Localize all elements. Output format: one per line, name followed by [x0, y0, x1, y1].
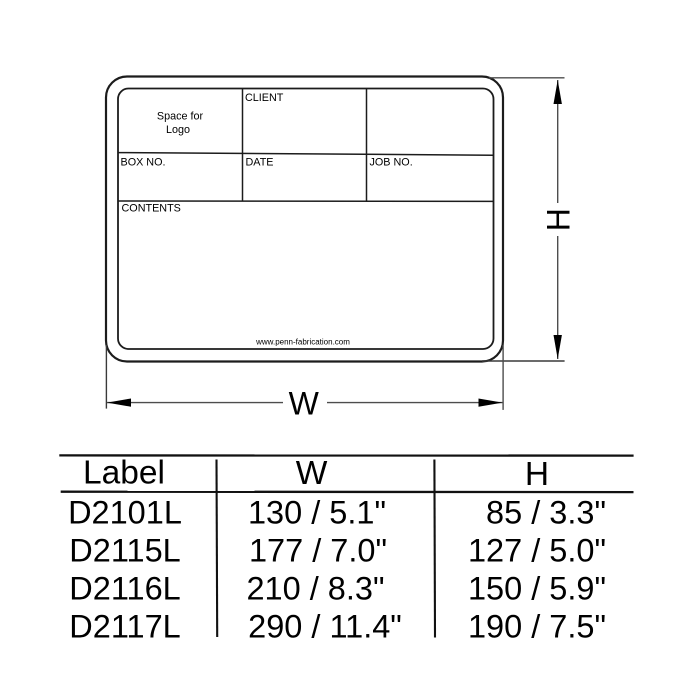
- svg-text:W: W: [296, 455, 328, 492]
- svg-text:150 / 5.9": 150 / 5.9": [468, 571, 606, 607]
- svg-text:DATE: DATE: [246, 156, 274, 168]
- svg-text:D2115L: D2115L: [69, 533, 180, 569]
- svg-text:210 / 8.3": 210 / 8.3": [246, 571, 384, 607]
- svg-text:www.penn-fabrication.com: www.penn-fabrication.com: [255, 338, 350, 347]
- svg-text:H: H: [525, 456, 549, 493]
- svg-text:D2116L: D2116L: [69, 571, 180, 607]
- svg-text:D2101L: D2101L: [68, 495, 182, 531]
- svg-text:290 / 11.4": 290 / 11.4": [248, 609, 402, 645]
- svg-text:JOB NO.: JOB NO.: [370, 156, 413, 168]
- svg-text:Label: Label: [83, 455, 165, 492]
- svg-text:W: W: [289, 386, 320, 422]
- svg-text:Logo: Logo: [166, 124, 190, 136]
- svg-text:CLIENT: CLIENT: [245, 92, 284, 104]
- svg-text:H: H: [540, 208, 576, 231]
- svg-text:D2117L: D2117L: [69, 609, 180, 645]
- svg-text:Space for: Space for: [157, 111, 204, 123]
- svg-text:130 / 5.1": 130 / 5.1": [248, 495, 386, 531]
- svg-text:CONTENTS: CONTENTS: [122, 202, 181, 214]
- svg-text:177 / 7.0": 177 / 7.0": [249, 533, 387, 569]
- svg-text:BOX NO.: BOX NO.: [121, 156, 166, 168]
- svg-text:85 / 3.3": 85 / 3.3": [486, 495, 606, 531]
- svg-text:190 / 7.5": 190 / 7.5": [468, 609, 606, 645]
- svg-text:127 / 5.0": 127 / 5.0": [468, 533, 606, 569]
